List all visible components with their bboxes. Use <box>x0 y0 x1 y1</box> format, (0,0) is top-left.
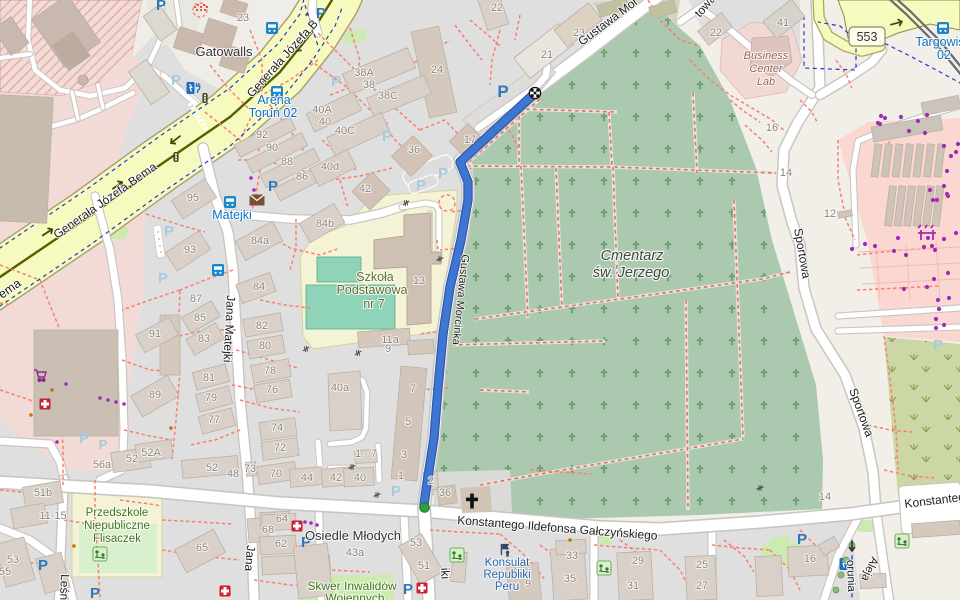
svg-text:21: 21 <box>541 49 553 61</box>
svg-text:25: 25 <box>696 559 708 571</box>
svg-text:90: 90 <box>266 142 278 154</box>
svg-text:42: 42 <box>359 183 371 195</box>
svg-text:56a: 56a <box>93 459 112 471</box>
svg-text:P: P <box>268 178 278 195</box>
svg-text:P: P <box>416 177 426 194</box>
svg-text:38A: 38A <box>354 67 374 79</box>
svg-text:02: 02 <box>937 48 951 62</box>
svg-text:orunia: orunia <box>844 560 857 593</box>
svg-text:42: 42 <box>330 472 342 484</box>
svg-text:24: 24 <box>431 64 443 76</box>
svg-text:Podstawowa: Podstawowa <box>337 283 408 297</box>
svg-text:92: 92 <box>256 129 268 141</box>
svg-text:P: P <box>158 270 168 287</box>
svg-text:36: 36 <box>439 487 451 499</box>
svg-text:Matejki: Matejki <box>212 208 252 222</box>
svg-text:Przedszkole: Przedszkole <box>86 507 149 519</box>
svg-text:40a: 40a <box>331 382 350 394</box>
svg-text:Business: Business <box>744 50 789 62</box>
svg-text:Toruń 02: Toruń 02 <box>249 106 298 120</box>
svg-text:27: 27 <box>696 580 708 592</box>
svg-text:P: P <box>391 483 401 500</box>
svg-text:64: 64 <box>276 513 288 525</box>
svg-text:Szkoła: Szkoła <box>356 270 394 284</box>
svg-text:P: P <box>164 223 174 240</box>
svg-text:33: 33 <box>566 550 578 562</box>
svg-text:P: P <box>156 0 166 14</box>
svg-text:38C: 38C <box>378 90 398 102</box>
svg-text:44: 44 <box>301 472 313 484</box>
svg-text:84: 84 <box>253 281 265 293</box>
svg-text:Republiki: Republiki <box>483 569 530 581</box>
svg-text:14: 14 <box>819 491 831 503</box>
svg-text:16: 16 <box>804 553 816 565</box>
svg-text:40A: 40A <box>312 104 332 116</box>
svg-text:P: P <box>90 585 100 600</box>
svg-text:55: 55 <box>0 566 11 578</box>
svg-text:48: 48 <box>227 468 239 480</box>
svg-text:40: 40 <box>354 472 366 484</box>
svg-text:23: 23 <box>237 12 249 24</box>
svg-text:65: 65 <box>196 542 208 554</box>
svg-text:40d: 40d <box>321 161 339 173</box>
svg-text:83: 83 <box>198 333 210 345</box>
svg-text:3: 3 <box>401 449 407 461</box>
svg-text:17: 17 <box>464 134 476 146</box>
svg-text:1: 1 <box>398 470 404 482</box>
svg-text:P: P <box>933 337 943 354</box>
svg-text:553: 553 <box>857 30 878 44</box>
svg-text:31: 31 <box>627 580 639 592</box>
svg-text:95: 95 <box>187 192 199 204</box>
svg-text:29: 29 <box>632 555 644 567</box>
svg-text:51: 51 <box>418 560 430 572</box>
svg-text:1 - 7: 1 - 7 <box>355 448 377 460</box>
svg-text:Leśna: Leśna <box>57 574 72 600</box>
svg-text:62: 62 <box>275 538 287 550</box>
svg-text:40C: 40C <box>335 125 355 137</box>
svg-text:78: 78 <box>264 365 276 377</box>
svg-text:74: 74 <box>271 422 283 434</box>
svg-text:13: 13 <box>413 275 425 287</box>
svg-text:Jana: Jana <box>242 545 258 572</box>
svg-text:85: 85 <box>194 312 206 324</box>
svg-text:P: P <box>497 82 508 101</box>
svg-text:51b: 51b <box>34 487 52 499</box>
svg-text:16: 16 <box>766 122 778 134</box>
svg-text:52: 52 <box>126 453 138 465</box>
svg-text:84a: 84a <box>251 235 270 247</box>
svg-text:7: 7 <box>410 383 416 395</box>
svg-text:nr 7: nr 7 <box>363 297 385 311</box>
svg-text:Flisaczek: Flisaczek <box>93 533 141 545</box>
svg-text:11-15: 11-15 <box>39 510 66 522</box>
svg-text:9: 9 <box>385 343 391 355</box>
svg-text:Niepubliczne: Niepubliczne <box>84 520 150 532</box>
svg-text:52: 52 <box>206 462 218 474</box>
svg-text:Osiedle Młodych: Osiedle Młodych <box>305 528 401 543</box>
svg-text:53: 53 <box>7 554 19 566</box>
svg-text:41: 41 <box>777 17 789 29</box>
svg-text:70: 70 <box>270 468 282 480</box>
svg-text:82: 82 <box>256 320 268 332</box>
svg-text:Center: Center <box>749 63 783 75</box>
svg-text:84b: 84b <box>316 218 334 230</box>
svg-text:81: 81 <box>203 372 215 384</box>
svg-text:Gatowalls: Gatowalls <box>195 44 253 59</box>
svg-text:Cmentarz: Cmentarz <box>601 248 665 264</box>
svg-text:12: 12 <box>824 208 836 220</box>
svg-text:22: 22 <box>710 27 722 39</box>
svg-text:87: 87 <box>190 293 202 305</box>
svg-text:43a: 43a <box>346 547 365 559</box>
svg-text:Arena: Arena <box>257 93 290 107</box>
svg-text:P: P <box>797 531 807 548</box>
svg-text:Lab: Lab <box>757 76 775 88</box>
svg-text:Targowis: Targowis <box>915 35 960 49</box>
svg-text:2: 2 <box>428 475 434 487</box>
svg-text:53: 53 <box>410 537 422 549</box>
svg-text:Konsulat: Konsulat <box>485 557 531 569</box>
svg-text:P: P <box>38 557 48 574</box>
svg-text:76: 76 <box>266 384 278 396</box>
svg-text:14: 14 <box>780 167 792 179</box>
svg-text:38: 38 <box>363 79 375 91</box>
svg-text:P: P <box>438 165 448 182</box>
svg-text:P: P <box>316 5 326 22</box>
svg-text:79: 79 <box>205 392 217 404</box>
svg-text:68: 68 <box>262 524 274 536</box>
svg-text:Wojennych: Wojennych <box>325 591 384 600</box>
svg-text:P: P <box>382 128 392 145</box>
svg-text:40: 40 <box>319 116 331 128</box>
svg-text:P: P <box>171 72 181 89</box>
svg-text:P: P <box>99 437 108 452</box>
svg-text:91: 91 <box>149 328 161 340</box>
svg-text:iki: iki <box>438 567 453 579</box>
svg-text:P: P <box>79 430 89 447</box>
svg-text:52A: 52A <box>141 447 161 459</box>
svg-text:77: 77 <box>208 414 220 426</box>
svg-text:36: 36 <box>408 144 420 156</box>
svg-text:80: 80 <box>259 340 271 352</box>
svg-text:Peru: Peru <box>495 581 519 593</box>
svg-text:72: 72 <box>274 442 286 454</box>
svg-text:P: P <box>331 73 341 90</box>
svg-text:5: 5 <box>405 416 411 428</box>
svg-text:św. Jerzego: św. Jerzego <box>593 265 670 281</box>
svg-text:P: P <box>403 581 413 598</box>
svg-text:93: 93 <box>184 244 196 256</box>
svg-text:73: 73 <box>244 463 256 475</box>
svg-text:88: 88 <box>281 156 293 168</box>
svg-text:86: 86 <box>296 171 308 183</box>
svg-text:22: 22 <box>491 2 503 14</box>
svg-text:89: 89 <box>149 389 161 401</box>
svg-text:35: 35 <box>564 573 576 585</box>
